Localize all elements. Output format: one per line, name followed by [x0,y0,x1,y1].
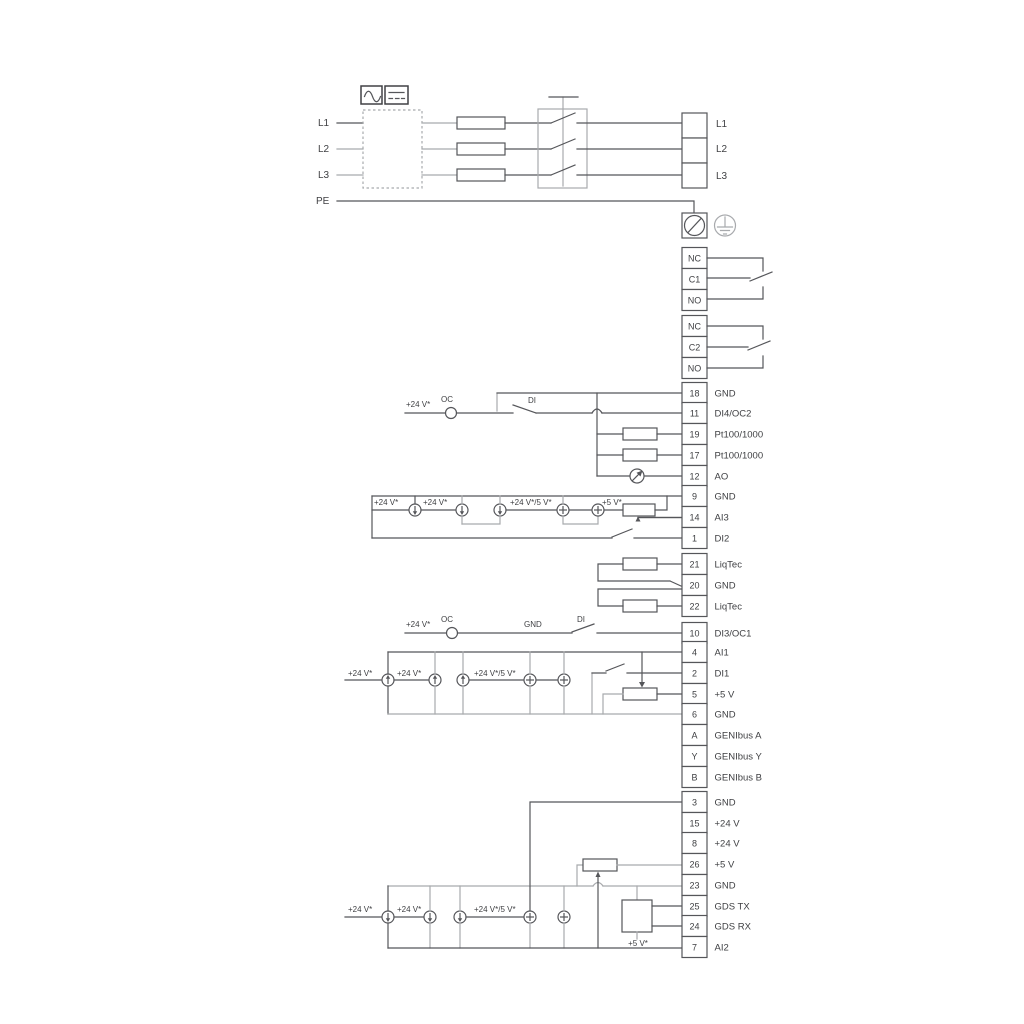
terminal-cell: 10DI3/OC1 [682,623,751,644]
terminal-cell: 6GND [682,704,736,725]
fuse-l2 [457,143,505,155]
out-l3-label: L3 [716,171,728,182]
terminal-number: 23 [689,881,699,891]
terminal-label: GDS TX [715,902,751,913]
terminal-cell: 5+5 V [682,684,735,705]
out-l1-label: L1 [716,119,728,130]
p5-label: +5 V* [602,498,622,507]
terminal-cell: 17Pt100/1000 [682,445,763,466]
p24-label: +24 V* [374,498,398,507]
p24-label: +24 V* [406,620,430,629]
terminal-number: 20 [689,581,699,591]
mains-input-section: L1 L2 L3 PE [316,86,736,238]
di4-section: +24 V* OC DI [405,393,682,483]
wiper-arrow-icon [639,682,645,688]
terminal-number: Y [691,752,697,762]
pt100-resistor-2 [623,449,657,461]
terminal-label: GND [715,581,736,592]
voltage-source-icon [524,674,536,686]
terminal-label: GENIbus B [715,773,763,784]
terminal-number: 18 [689,389,699,399]
terminal-label: DI2 [715,534,730,545]
terminal-cell: 14AI3 [682,507,729,528]
wiring-diagram: L1 L2 L3 PE [0,0,1024,1024]
terminal-cell: 22LiqTec [682,596,742,617]
current-source-down-icon [454,911,466,923]
terminal-label: GENIbus Y [715,752,763,763]
terminal-cell: BGENIbus B [682,767,762,788]
mains-l2-label: L2 [318,144,330,155]
terminal-label: +5 V [715,860,735,871]
terminal-number: 7 [692,943,697,953]
terminal-number: 19 [689,430,699,440]
pe-terminal [682,213,707,238]
terminal-label: LiqTec [715,560,743,571]
analog-output-meter-icon [630,469,644,483]
relay1-nc: NC [688,254,701,264]
terminal-cell: 20GND [682,575,736,596]
terminal-cell: 8+24 V [682,833,740,854]
terminal-cell: 18GND [682,383,736,404]
terminal-number: 21 [689,560,699,570]
current-source-down-icon [494,504,506,516]
mains-output-block: L1 L2 L3 [682,113,728,188]
ai1-section: +24 V* +24 V* +24 V*/5 V* [345,652,682,714]
terminal-cell: 24GDS RX [682,916,752,937]
current-source-down-icon [382,911,394,923]
terminal-number: 12 [689,472,699,482]
terminal-label: AI1 [715,648,729,659]
terminal-label: DI4/OC2 [715,409,752,420]
voltage-source-icon [558,674,570,686]
terminal-label: GENIbus A [715,731,763,742]
p24-label: +24 V* [348,905,372,914]
terminal-label: GDS RX [715,922,752,933]
terminal-cell: 2DI1 [682,663,729,684]
dc-symbol-box [385,86,408,104]
terminal-number: 24 [689,922,699,932]
fuse-l1 [457,117,505,129]
terminal-cell: 19Pt100/1000 [682,424,763,445]
terminal-label: +24 V [715,819,741,830]
terminal-cell: 25GDS TX [682,896,750,917]
terminal-cell: 15+24 V [682,813,740,834]
earth-icon [715,215,736,236]
current-source-up-icon [429,674,441,686]
open-collector-icon [447,628,458,639]
terminal-label: +24 V [715,839,741,850]
wiring-diagram-page: L1 L2 L3 PE [0,0,1024,1024]
terminal-label: AI2 [715,943,729,954]
liqtec-sensor-2 [623,600,657,612]
relay2-no: NO [688,364,702,374]
terminal-cell: 7AI2 [682,937,729,958]
terminal-cell: 11DI4/OC2 [682,403,751,424]
gnd-label: GND [524,620,542,629]
potentiometer [623,688,657,700]
terminal-cell: YGENIbus Y [682,746,763,767]
terminal-blocks: 18GND11DI4/OC219Pt100/100017Pt100/100012… [682,383,763,958]
di-label: DI [577,615,585,624]
terminal-number: 2 [692,669,697,679]
terminal-number: B [691,773,697,783]
current-source-down-icon [424,911,436,923]
relay2-nc: NC [688,322,701,332]
main-switch [538,97,587,188]
open-collector-icon [446,408,457,419]
terminal-cell: 12AO [682,466,728,487]
terminal-number: 9 [692,492,697,502]
mains-l1-label: L1 [318,118,330,129]
terminal-label: DI1 [715,669,730,680]
voltage-source-icon [557,504,569,516]
terminal-cell: 21LiqTec [682,554,742,575]
filter-dashed-box [363,110,422,188]
relay1-c: C1 [689,275,701,285]
relay1-no: NO [688,296,702,306]
terminal-cell: 23GND [682,875,736,896]
current-source-up-icon [382,674,394,686]
terminal-cell: 3GND [682,792,736,813]
current-source-up-icon [457,674,469,686]
p24-5-label: +24 V*/5 V* [474,905,516,914]
terminal-number: 5 [692,690,697,700]
di-label: DI [528,396,536,405]
wiper-arrow-icon [596,872,601,878]
p24-label: +24 V* [423,498,447,507]
terminal-label: DI3/OC1 [715,629,752,640]
mains-l3-label: L3 [318,170,330,181]
p5-label: +5 V* [628,939,648,948]
pt100-resistor-1 [623,428,657,440]
p24-5-label: +24 V*/5 V* [510,498,552,507]
fuse-l3 [457,169,505,181]
terminal-label: GND [715,389,736,400]
p24-5-label: +24 V*/5 V* [474,669,516,678]
terminal-label: GND [715,710,736,721]
terminal-number: 6 [692,710,697,720]
potentiometer [583,859,617,871]
relay2-c: C2 [689,343,701,353]
terminal-number: 1 [692,534,697,544]
p24-label: +24 V* [397,905,421,914]
out-l2-label: L2 [716,144,728,155]
current-source-down-icon [409,504,421,516]
current-source-down-icon [456,504,468,516]
terminal-number: 3 [692,798,697,808]
terminal-number: 17 [689,451,699,461]
terminal-label: Pt100/1000 [715,430,764,441]
liqtec-section [598,558,682,612]
voltage-source-icon [524,911,536,923]
terminal-cell: 4AI1 [682,642,729,663]
terminal-cell: 1DI2 [682,528,729,549]
voltage-source-icon [558,911,570,923]
di3-section: +24 V* OC GND DI [405,615,682,639]
terminal-number: 8 [692,839,697,849]
terminal-number: 4 [692,648,697,658]
oc-label: OC [441,615,453,624]
p24-label: +24 V* [348,669,372,678]
terminal-number: 14 [689,513,699,523]
terminal-label: GND [715,798,736,809]
terminal-label: Pt100/1000 [715,451,764,462]
terminal-cell: 9GND [682,486,736,507]
terminal-label: AO [715,472,729,483]
relay1-block: NC C1 NO [682,248,772,311]
terminal-number: A [691,731,697,741]
gds-module [622,900,652,932]
potentiometer [623,504,655,516]
terminal-number: 25 [689,902,699,912]
terminal-cell: AGENIbus A [682,725,762,746]
p24-label: +24 V* [397,669,421,678]
mains-pe-label: PE [316,196,330,207]
terminal-label: LiqTec [715,602,743,613]
terminal-label: GND [715,881,736,892]
terminal-number: 15 [689,819,699,829]
ai2-section: +5 V* +24 V* +24 V* +24 V*/5 V* [345,802,682,948]
relay2-block: NC C2 NO [682,316,770,379]
p24-label: +24 V* [406,400,430,409]
terminal-cell: 26+5 V [682,854,735,875]
liqtec-sensor-1 [623,558,657,570]
terminal-number: 22 [689,602,699,612]
terminal-number: 10 [689,629,699,639]
terminal-number: 11 [690,409,699,419]
terminal-label: +5 V [715,690,735,701]
ai3-section: +24 V* +24 V* +24 V*/5 V* +5 V* [372,496,682,538]
terminal-label: GND [715,492,736,503]
terminal-number: 26 [689,860,699,870]
oc-label: OC [441,395,453,404]
terminal-label: AI3 [715,513,729,524]
